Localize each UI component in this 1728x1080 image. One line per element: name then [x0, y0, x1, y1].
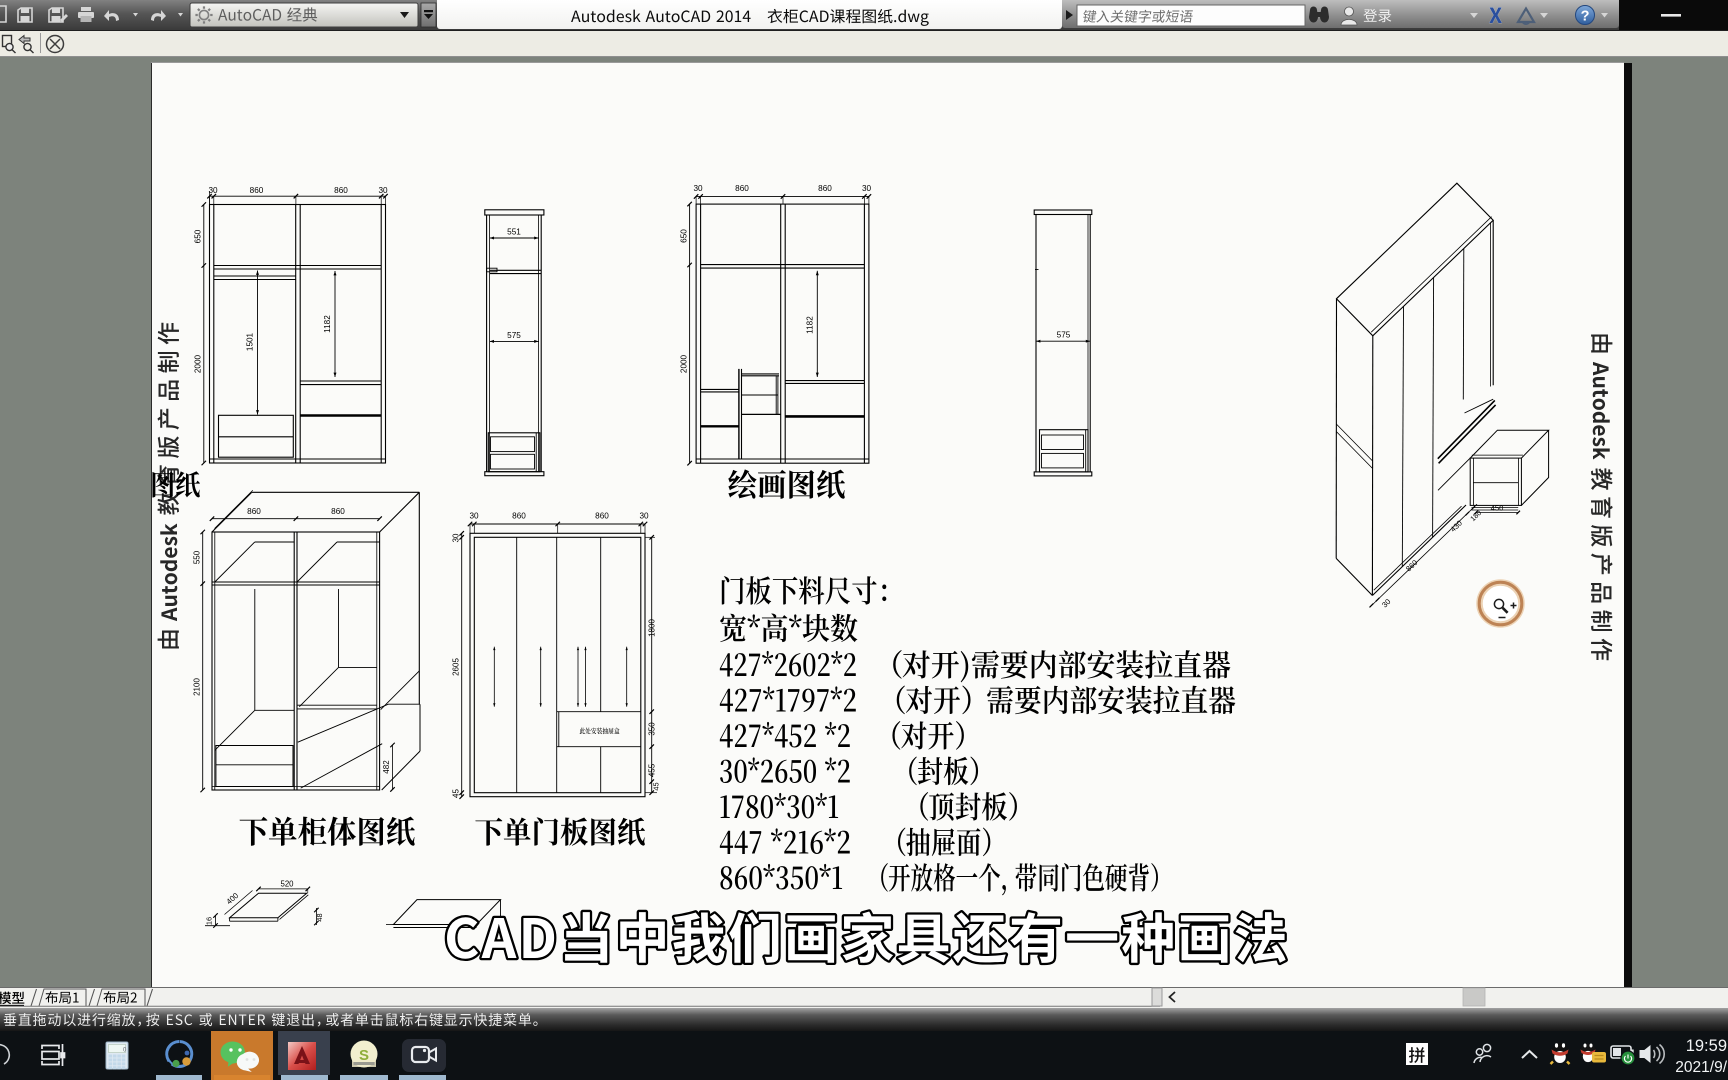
svg-text:30: 30: [639, 512, 649, 521]
svg-text:45: 45: [452, 789, 461, 798]
svg-text:2605: 2605: [452, 658, 461, 676]
svg-text:860: 860: [331, 507, 345, 516]
svg-text:19:59: 19:59: [1686, 1037, 1727, 1055]
svg-text:30: 30: [208, 186, 218, 195]
svg-text:30: 30: [469, 512, 479, 521]
svg-text:450: 450: [1491, 504, 1504, 513]
svg-text:2021/9/: 2021/9/: [1675, 1059, 1727, 1076]
svg-text:1182: 1182: [323, 315, 332, 333]
svg-text:48: 48: [315, 913, 324, 921]
svg-text:575: 575: [1057, 331, 1071, 340]
svg-text:30: 30: [452, 533, 461, 542]
svg-text:551: 551: [507, 228, 521, 237]
svg-text:30: 30: [378, 186, 388, 195]
svg-text:860: 860: [512, 512, 526, 521]
svg-text:575: 575: [507, 331, 521, 340]
svg-text:650: 650: [680, 229, 689, 243]
svg-text:2000: 2000: [194, 354, 203, 373]
svg-text:1800: 1800: [648, 619, 657, 637]
svg-text:2100: 2100: [193, 678, 202, 696]
svg-text:550: 550: [193, 550, 202, 564]
svg-text:860: 860: [818, 184, 832, 193]
svg-text:860: 860: [735, 184, 749, 193]
svg-text:430: 430: [1449, 519, 1464, 534]
svg-text:482: 482: [382, 760, 391, 774]
svg-text:2000: 2000: [680, 354, 689, 373]
svg-text:16: 16: [205, 917, 214, 925]
svg-text:860: 860: [1404, 558, 1419, 573]
svg-text:1182: 1182: [805, 316, 814, 334]
svg-text:30: 30: [1380, 597, 1392, 609]
svg-text:350: 350: [648, 722, 657, 736]
svg-text:30: 30: [862, 184, 872, 193]
svg-text:455: 455: [648, 763, 657, 777]
svg-text:30: 30: [693, 184, 703, 193]
svg-text:860: 860: [334, 186, 348, 195]
svg-text:650: 650: [194, 229, 203, 243]
svg-text:860: 860: [247, 507, 261, 516]
svg-text:860: 860: [250, 186, 264, 195]
svg-text:?: ?: [1581, 9, 1590, 25]
svg-text:400: 400: [224, 891, 240, 907]
svg-text:860: 860: [595, 512, 609, 521]
svg-text:45: 45: [652, 782, 661, 790]
svg-text:1501: 1501: [246, 332, 255, 351]
svg-text:520: 520: [280, 879, 294, 888]
